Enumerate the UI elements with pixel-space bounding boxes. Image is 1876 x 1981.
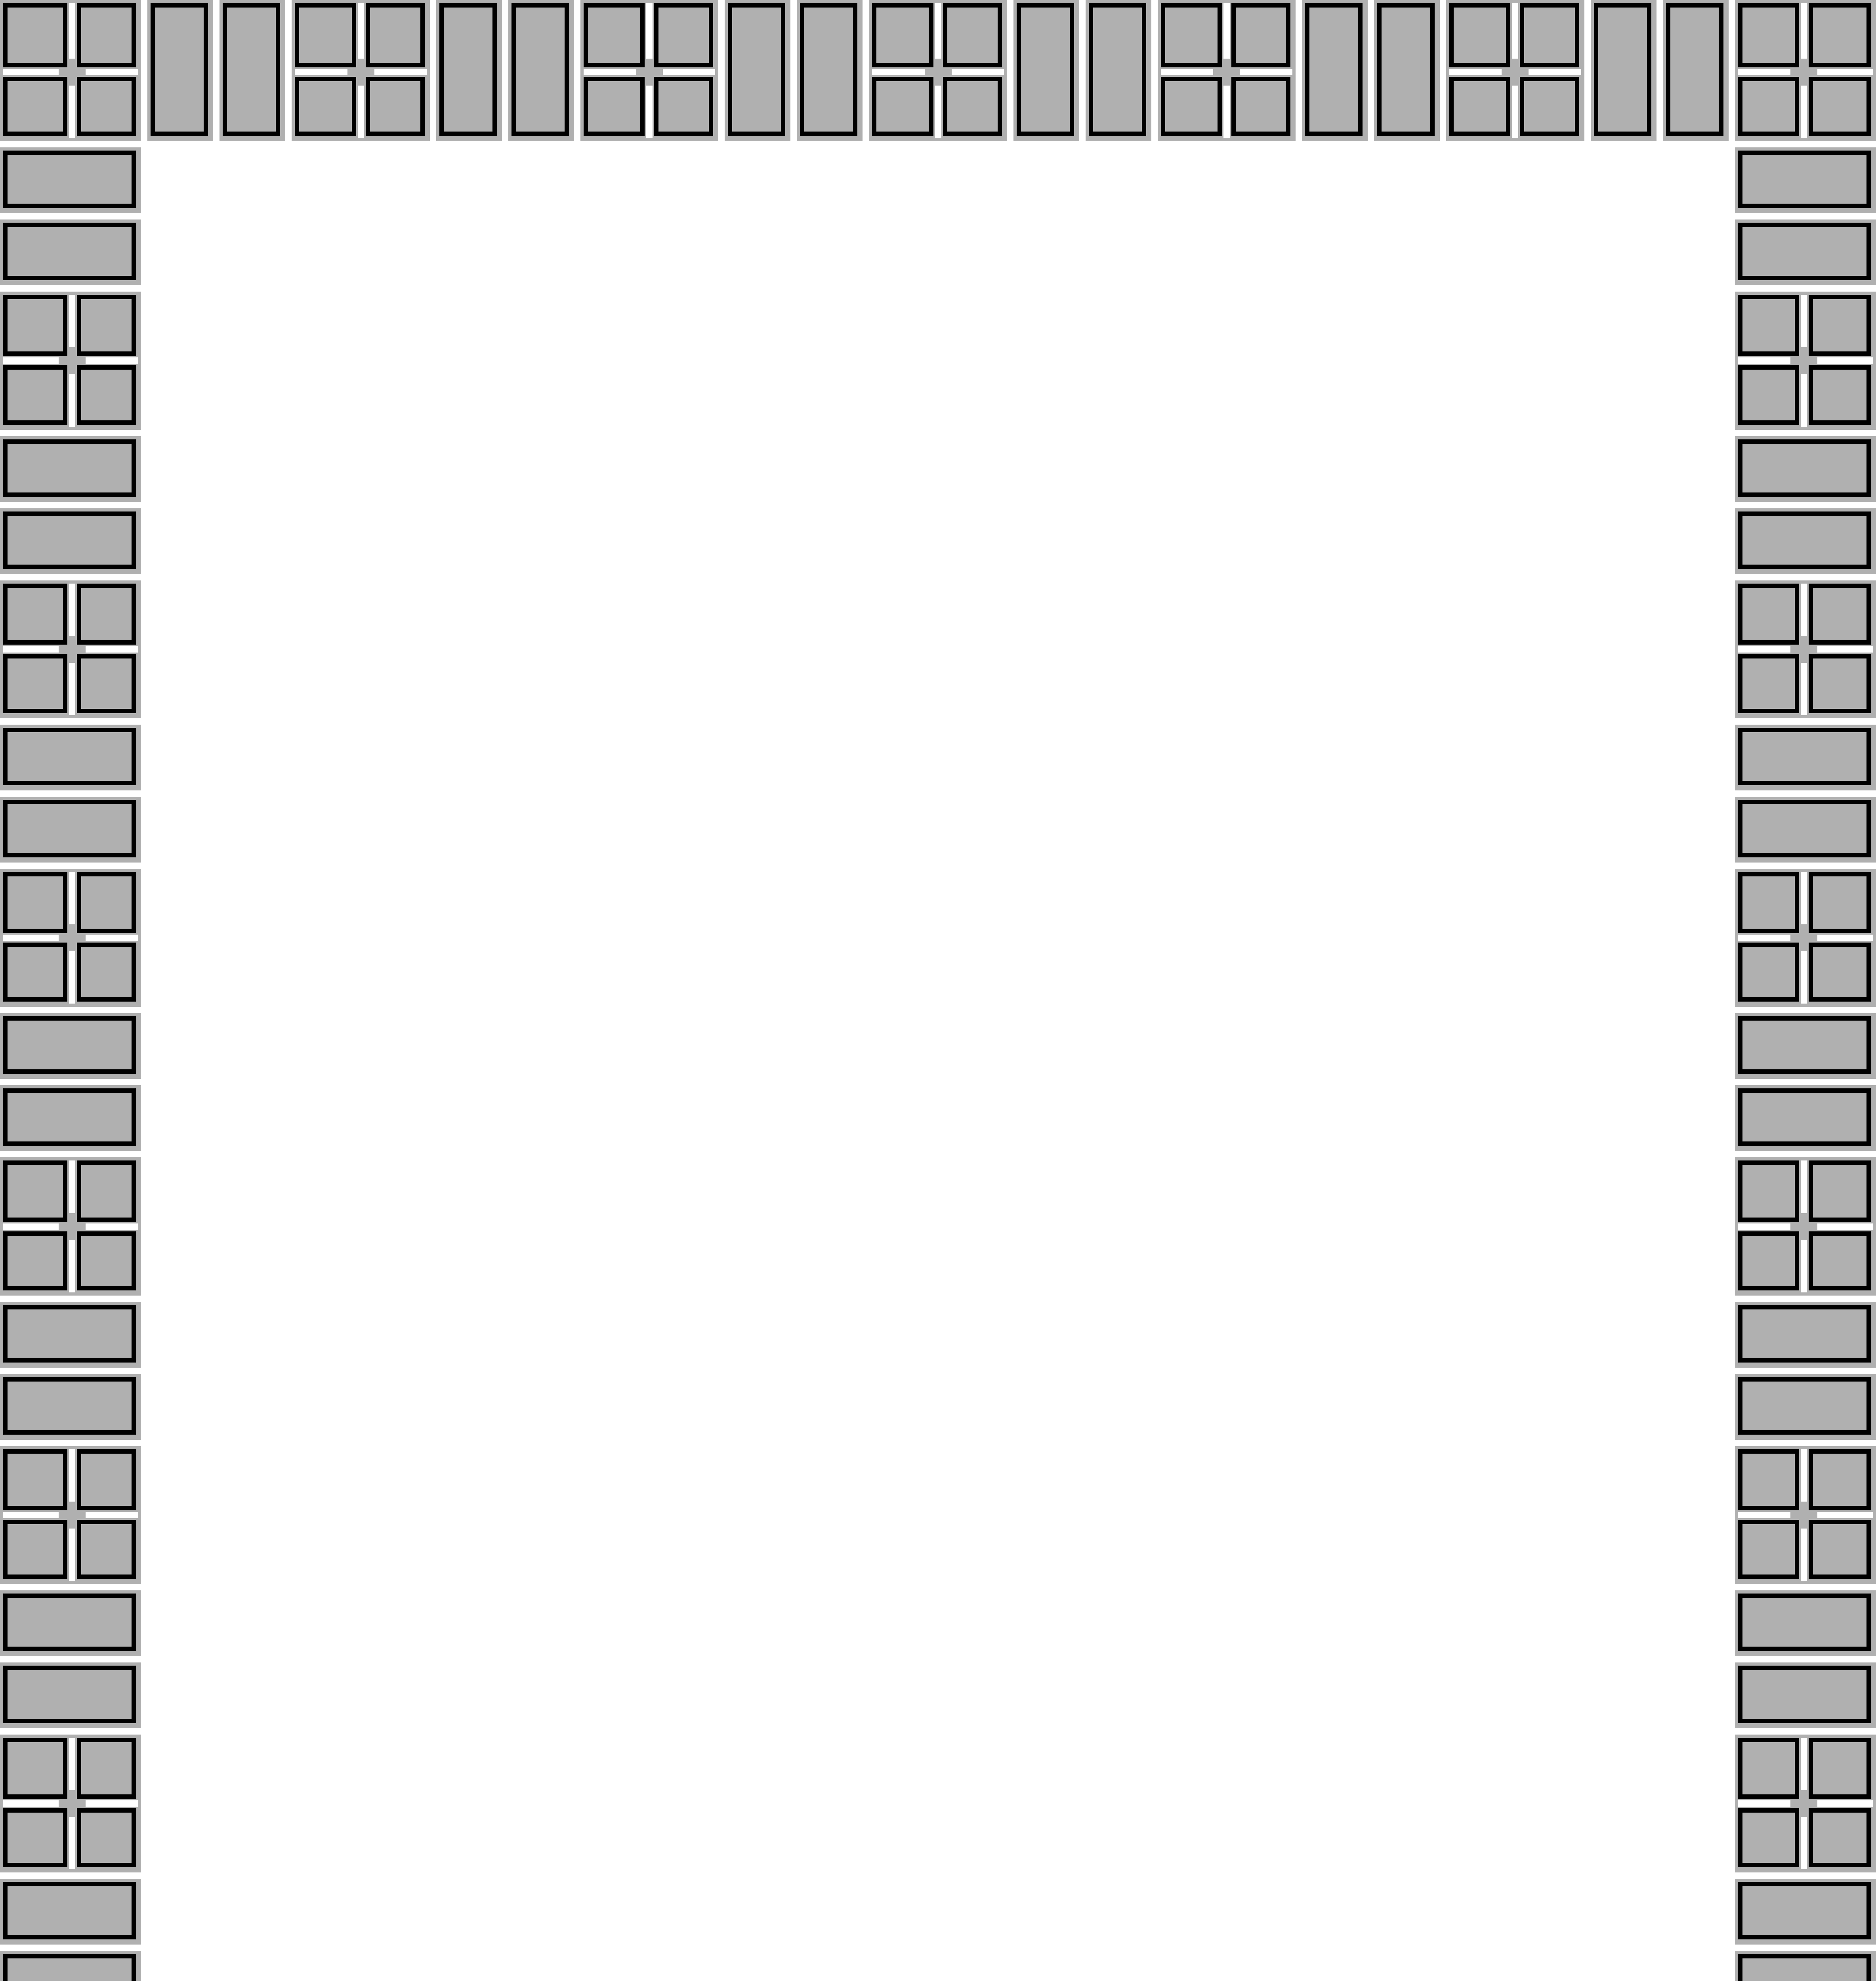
tile-square-outline (1809, 943, 1871, 1002)
tile-bar-outline (3, 1666, 136, 1723)
gap-highlight (872, 69, 925, 75)
gap-highlight (69, 872, 75, 924)
tile-square-outline (3, 1231, 67, 1290)
gap-highlight (69, 1817, 75, 1869)
tile-bar-outline (3, 1377, 136, 1435)
tile-bar-outline (3, 800, 136, 857)
gap-highlight (1738, 935, 1790, 941)
tile-bar-outline (3, 1882, 136, 1939)
gap-highlight (3, 646, 59, 653)
gap-highlight (86, 1800, 138, 1807)
gap-highlight (3, 357, 59, 364)
tile-square-outline (943, 3, 1002, 67)
tile-bar-outline (728, 3, 785, 136)
gap-highlight (69, 584, 75, 636)
tile-bar-outline (1305, 3, 1363, 136)
tile-square-outline (3, 1738, 67, 1799)
tile-square-outline (654, 3, 713, 67)
tile-square-outline (1809, 872, 1871, 933)
gap-highlight (3, 1512, 59, 1518)
gap-highlight (3, 1800, 59, 1807)
tile-bar-outline (1594, 3, 1651, 136)
tile-square-outline (77, 943, 136, 1002)
tile-square-outline (77, 1808, 136, 1867)
tile-square-outline (366, 77, 425, 136)
tile-bar-outline (800, 3, 857, 136)
tile-square-outline (943, 77, 1002, 136)
tile-square-outline (1738, 3, 1799, 67)
tile-square-outline (1809, 1449, 1871, 1510)
tile-square-outline (1231, 77, 1290, 136)
gap-highlight (86, 357, 138, 364)
tile-square-outline (872, 3, 933, 67)
tile-square-outline (3, 1520, 67, 1579)
tile-bar-outline (1738, 511, 1871, 569)
tile-square-outline (77, 365, 136, 425)
gap-highlight (935, 3, 941, 59)
tile-bar-outline (3, 1088, 136, 1146)
gap-highlight (1512, 86, 1518, 138)
gap-highlight (1817, 69, 1873, 75)
tile-square-outline (1738, 872, 1799, 933)
tile-square-outline (3, 3, 67, 67)
tile-bar-outline (1666, 3, 1723, 136)
gap-highlight (1801, 1160, 1807, 1213)
gap-highlight (1817, 1512, 1873, 1518)
gap-highlight (1801, 951, 1807, 1004)
tile-square-outline (1449, 77, 1510, 136)
tile-bar-outline (1738, 1305, 1871, 1363)
tile-square-outline (77, 584, 136, 645)
tile-square-outline (3, 365, 67, 425)
tile-bar-outline (1738, 800, 1871, 857)
gap-highlight (358, 86, 364, 138)
gap-highlight (1801, 663, 1807, 715)
page (0, 0, 1876, 1981)
gap-highlight (69, 295, 75, 347)
tile-square-outline (1809, 1738, 1871, 1799)
gap-highlight (663, 69, 715, 75)
gap-highlight (1817, 646, 1873, 653)
tile-square-outline (654, 77, 713, 136)
gap-highlight (1801, 86, 1807, 138)
tile-bar-outline (1738, 1882, 1871, 1939)
tile-bar-outline (1738, 151, 1871, 208)
gap-highlight (69, 663, 75, 715)
tile-bar-outline (511, 3, 569, 136)
tile-bar-outline (3, 1305, 136, 1363)
gap-highlight (86, 69, 138, 75)
tile-square-outline (1738, 365, 1799, 425)
tile-bar-outline (1738, 1666, 1871, 1723)
gap-highlight (86, 1223, 138, 1230)
gap-highlight (1801, 1240, 1807, 1292)
tile-bar-outline (3, 223, 136, 280)
tile-square-outline (584, 3, 645, 67)
gap-highlight (1738, 1512, 1790, 1518)
tile-square-outline (1738, 1231, 1799, 1290)
tile-square-outline (295, 77, 356, 136)
gap-highlight (69, 86, 75, 138)
decorative-block-border (0, 0, 1876, 1981)
gap-highlight (1512, 3, 1518, 59)
tile-square-outline (1809, 1520, 1871, 1579)
tile-square-outline (1520, 3, 1579, 67)
tile-square-outline (77, 1520, 136, 1579)
tile-square-outline (1738, 1520, 1799, 1579)
tile-bar-outline (3, 728, 136, 785)
gap-highlight (1738, 646, 1790, 653)
tile-square-outline (77, 654, 136, 713)
tile-square-outline (1738, 584, 1799, 645)
gap-highlight (1529, 69, 1581, 75)
tile-bar-outline (1738, 728, 1871, 785)
tile-square-outline (1738, 1449, 1799, 1510)
gap-highlight (952, 69, 1004, 75)
tile-square-outline (77, 1160, 136, 1222)
tile-square-outline (3, 77, 67, 136)
tile-bar-outline (1738, 1088, 1871, 1146)
tile-square-outline (872, 77, 933, 136)
tile-square-outline (1738, 1808, 1799, 1867)
gap-highlight (1801, 1529, 1807, 1581)
gap-highlight (86, 646, 138, 653)
tile-square-outline (1449, 3, 1510, 67)
gap-highlight (1817, 935, 1873, 941)
tile-square-outline (1809, 295, 1871, 356)
gap-highlight (1161, 69, 1213, 75)
tile-bar-outline (3, 439, 136, 497)
tile-square-outline (1809, 3, 1871, 67)
tile-bar-outline (1738, 1594, 1871, 1651)
tile-square-outline (3, 654, 67, 713)
gap-highlight (584, 69, 636, 75)
gap-highlight (1801, 3, 1807, 59)
tile-square-outline (1738, 654, 1799, 713)
tile-square-outline (1809, 1231, 1871, 1290)
gap-highlight (1738, 1800, 1790, 1807)
gap-highlight (69, 3, 75, 59)
tile-bar-outline (1089, 3, 1146, 136)
tile-square-outline (295, 3, 356, 67)
gap-highlight (86, 1512, 138, 1518)
gap-highlight (1801, 1738, 1807, 1790)
gap-highlight (3, 1223, 59, 1230)
gap-highlight (3, 69, 59, 75)
gap-highlight (1801, 584, 1807, 636)
gap-highlight (358, 3, 364, 59)
tile-bar-outline (1738, 1016, 1871, 1074)
gap-highlight (69, 1529, 75, 1581)
tile-square-outline (3, 1808, 67, 1867)
gap-highlight (69, 1449, 75, 1502)
tile-bar-outline (1738, 1377, 1871, 1435)
gap-highlight (295, 69, 347, 75)
tile-bar-outline (151, 3, 208, 136)
tile-square-outline (3, 943, 67, 1002)
gap-highlight (69, 1738, 75, 1790)
tile-bar-outline (3, 1016, 136, 1074)
tile-square-outline (1809, 365, 1871, 425)
tile-square-outline (1738, 1738, 1799, 1799)
tile-bar-outline (3, 1594, 136, 1651)
gap-highlight (935, 86, 941, 138)
gap-highlight (1738, 69, 1790, 75)
tile-square-outline (77, 1231, 136, 1290)
tile-square-outline (77, 295, 136, 356)
tile-bar-outline (1738, 1954, 1871, 1981)
tile-square-outline (1809, 654, 1871, 713)
tile-square-outline (584, 77, 645, 136)
tile-square-outline (1161, 77, 1222, 136)
tile-square-outline (1738, 295, 1799, 356)
tile-square-outline (3, 1160, 67, 1222)
gap-highlight (69, 374, 75, 427)
gap-highlight (1240, 69, 1292, 75)
tile-bar-outline (3, 511, 136, 569)
tile-square-outline (1161, 3, 1222, 67)
tile-square-outline (3, 295, 67, 356)
gap-highlight (69, 1160, 75, 1213)
tile-square-outline (77, 1449, 136, 1510)
tile-square-outline (1520, 77, 1579, 136)
gap-highlight (1801, 1817, 1807, 1869)
tile-square-outline (3, 1449, 67, 1510)
gap-highlight (1817, 1223, 1873, 1230)
gap-highlight (1801, 295, 1807, 347)
tile-square-outline (1738, 943, 1799, 1002)
tile-square-outline (77, 3, 136, 67)
tile-square-outline (1738, 77, 1799, 136)
gap-highlight (646, 86, 653, 138)
tile-bar-outline (1377, 3, 1435, 136)
tile-square-outline (3, 584, 67, 645)
tile-square-outline (77, 872, 136, 933)
tile-bar-outline (223, 3, 280, 136)
tile-bar-outline (439, 3, 497, 136)
tile-square-outline (1738, 1160, 1799, 1222)
tile-bar-outline (1017, 3, 1074, 136)
gap-highlight (1449, 69, 1502, 75)
gap-highlight (1223, 3, 1230, 59)
tile-square-outline (366, 3, 425, 67)
tile-square-outline (77, 1738, 136, 1799)
gap-highlight (86, 935, 138, 941)
gap-highlight (374, 69, 427, 75)
tile-bar-outline (1738, 223, 1871, 280)
tile-square-outline (1231, 3, 1290, 67)
tile-square-outline (1809, 77, 1871, 136)
gap-highlight (1738, 1223, 1790, 1230)
tile-square-outline (77, 77, 136, 136)
gap-highlight (1801, 374, 1807, 427)
tile-square-outline (1809, 1160, 1871, 1222)
tile-bar-outline (3, 151, 136, 208)
tile-bar-outline (1738, 439, 1871, 497)
gap-highlight (69, 951, 75, 1004)
tile-square-outline (3, 872, 67, 933)
gap-highlight (1738, 357, 1790, 364)
gap-highlight (646, 3, 653, 59)
gap-highlight (1817, 357, 1873, 364)
tile-bar-outline (3, 1954, 136, 1981)
tile-square-outline (1809, 584, 1871, 645)
tile-square-outline (1809, 1808, 1871, 1867)
gap-highlight (1801, 1449, 1807, 1502)
gap-highlight (69, 1240, 75, 1292)
gap-highlight (1817, 1800, 1873, 1807)
gap-highlight (1801, 872, 1807, 924)
gap-highlight (1223, 86, 1230, 138)
gap-highlight (3, 935, 59, 941)
